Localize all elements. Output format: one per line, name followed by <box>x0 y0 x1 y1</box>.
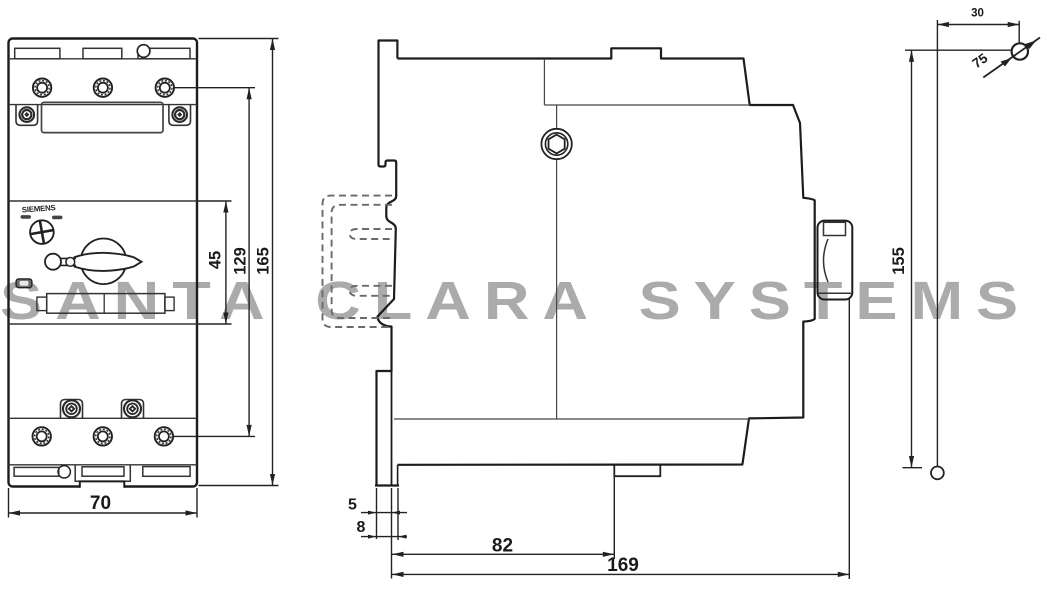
svg-text:75: 75 <box>969 50 990 71</box>
svg-text:70: 70 <box>90 493 111 514</box>
svg-text:30: 30 <box>971 8 984 20</box>
svg-text:82: 82 <box>492 536 513 557</box>
svg-text:SANTA CLARA SYSTEMS: SANTA CLARA SYSTEMS <box>0 271 1031 330</box>
svg-text:129: 129 <box>231 247 249 275</box>
svg-text:5: 5 <box>348 497 357 514</box>
svg-text:SIEMENS: SIEMENS <box>22 203 56 214</box>
svg-text:45: 45 <box>207 251 225 269</box>
svg-text:155: 155 <box>890 247 908 275</box>
svg-text:169: 169 <box>607 555 639 576</box>
svg-text:8: 8 <box>357 519 366 536</box>
svg-text:165: 165 <box>254 247 272 275</box>
